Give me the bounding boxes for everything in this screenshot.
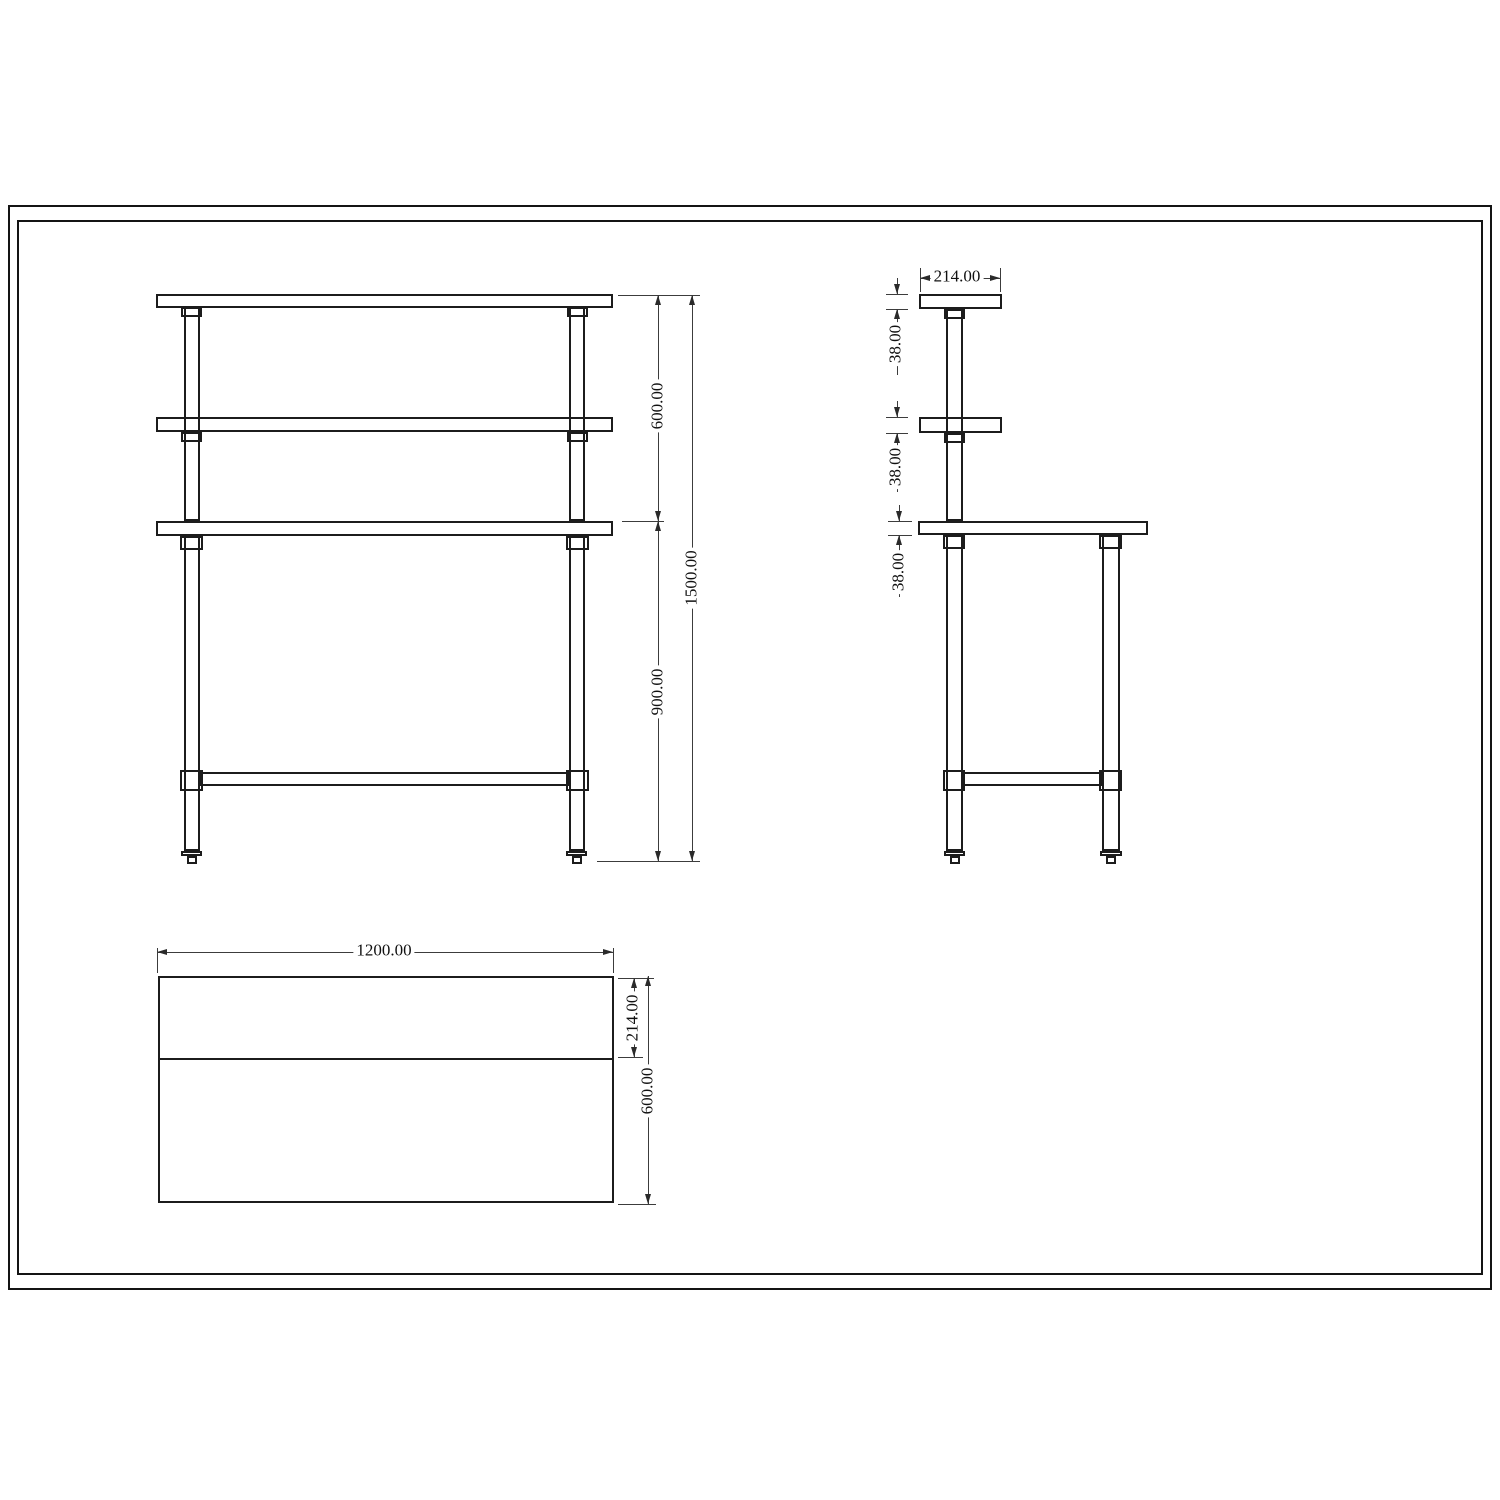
- dim-text-upper-height: 600.00: [649, 380, 668, 433]
- arrowhead: [896, 535, 902, 545]
- side-collar-mid: [944, 433, 965, 443]
- ext-line-shelf-right: [1000, 268, 1001, 292]
- side-top-shelf: [919, 294, 1002, 309]
- dim-text-top-shelf-thickness: 38.00: [887, 322, 906, 366]
- dim-text-mid-shelf-thickness: 38.00: [887, 445, 906, 489]
- side-middle-shelf: [919, 417, 1002, 433]
- front-top-shelf: [156, 294, 613, 308]
- front-collar-mid-left: [181, 432, 202, 442]
- arrowhead: [689, 295, 695, 305]
- ext-line: [888, 521, 912, 522]
- arrowhead: [645, 1194, 651, 1204]
- arrowhead: [631, 1047, 637, 1057]
- dim-text-shelf-depth: 214.00: [931, 268, 984, 287]
- ext-line-bottom: [597, 861, 700, 862]
- arrowhead: [631, 978, 637, 988]
- arrowhead: [920, 275, 930, 281]
- arrowhead: [645, 976, 651, 986]
- dim-text-length: 1200.00: [353, 942, 414, 961]
- side-tabletop: [918, 521, 1148, 535]
- front-collar-top-left: [181, 307, 202, 317]
- arrowhead: [655, 511, 661, 521]
- ext-line: [618, 1204, 656, 1205]
- dim-text-working-height: 900.00: [649, 666, 668, 719]
- dim-text-total-height: 1500.00: [683, 547, 702, 608]
- plan-tabletop-outline: [158, 976, 614, 1203]
- front-foot-left: [187, 856, 197, 864]
- side-foot-front: [950, 856, 960, 864]
- front-crossbar: [200, 772, 569, 786]
- side-crossbar: [963, 772, 1102, 786]
- front-right-post: [569, 306, 585, 521]
- front-collar-top-right: [567, 307, 588, 317]
- dim-text-table-depth: 600.00: [639, 1065, 658, 1118]
- front-junction-right: [566, 770, 589, 791]
- front-foot-right: [572, 856, 582, 864]
- front-junction-left: [180, 770, 203, 791]
- front-collar-mid-right: [567, 432, 588, 442]
- arrowhead: [990, 275, 1000, 281]
- arrowhead: [655, 851, 661, 861]
- front-middle-shelf: [156, 417, 613, 432]
- side-rear-leg: [1102, 535, 1120, 851]
- arrowhead: [655, 295, 661, 305]
- ext-line: [618, 1057, 643, 1058]
- side-collar-top: [944, 309, 965, 319]
- front-tabletop: [156, 521, 613, 536]
- front-left-post: [184, 306, 200, 521]
- side-front-leg: [946, 535, 963, 851]
- arrowhead: [896, 511, 902, 521]
- front-right-leg: [569, 536, 585, 851]
- cad-drawing-sheet: 600.00 900.00 1500.00: [0, 0, 1500, 1500]
- arrowhead: [603, 949, 613, 955]
- arrowhead: [689, 851, 695, 861]
- ext-line: [886, 294, 908, 295]
- plan-overshelf-edge: [158, 1058, 614, 1060]
- side-junction-rear: [1099, 770, 1122, 791]
- side-foot-rear: [1106, 856, 1116, 864]
- arrowhead: [157, 949, 167, 955]
- arrowhead: [655, 521, 661, 531]
- ext-line: [886, 417, 908, 418]
- front-left-leg: [184, 536, 200, 851]
- arrowhead: [894, 309, 900, 319]
- arrowhead: [894, 433, 900, 443]
- arrowhead: [894, 407, 900, 417]
- dim-text-overshelf-depth: 214.00: [624, 992, 643, 1045]
- side-junction-front: [943, 770, 965, 791]
- dim-text-worktop-thickness: 38.00: [890, 550, 909, 594]
- ext-line-plan-right: [613, 948, 614, 973]
- side-post: [946, 308, 963, 521]
- arrowhead: [894, 284, 900, 294]
